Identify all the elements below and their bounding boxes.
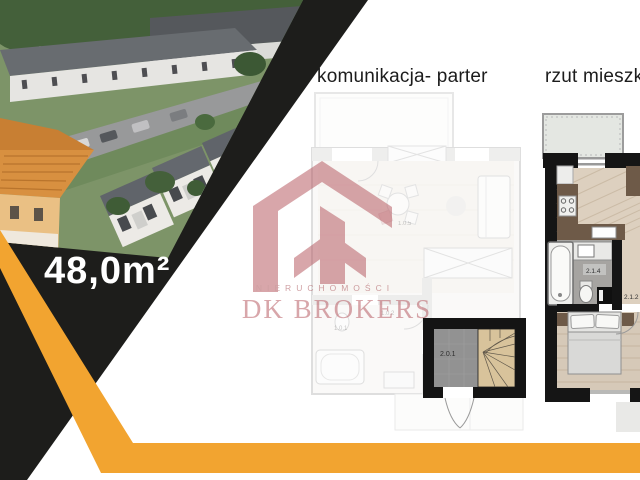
- room-label-bathroom: 2.1.4: [586, 268, 601, 275]
- right-floor-plan: 2.1.4 2.1.2: [543, 114, 640, 432]
- room-label-highlight: 2.0.1: [440, 351, 456, 358]
- flyer-canvas: 48,0m² komunikacja- parter rzut mieszkan…: [0, 0, 640, 480]
- room-label: 1.0.5: [398, 221, 412, 227]
- floor-plans-layer: 1.0.5 1.0.2 1.0.1 NIERUCHOMOŚCI DK BROKE…: [0, 0, 640, 480]
- room-label-hall: 2.1.2: [624, 294, 639, 301]
- watermark-tagline: NIERUCHOMOŚCI: [256, 282, 394, 293]
- room-label: 1.0.1: [334, 326, 348, 332]
- watermark-brand: DK BROKERS: [242, 294, 432, 324]
